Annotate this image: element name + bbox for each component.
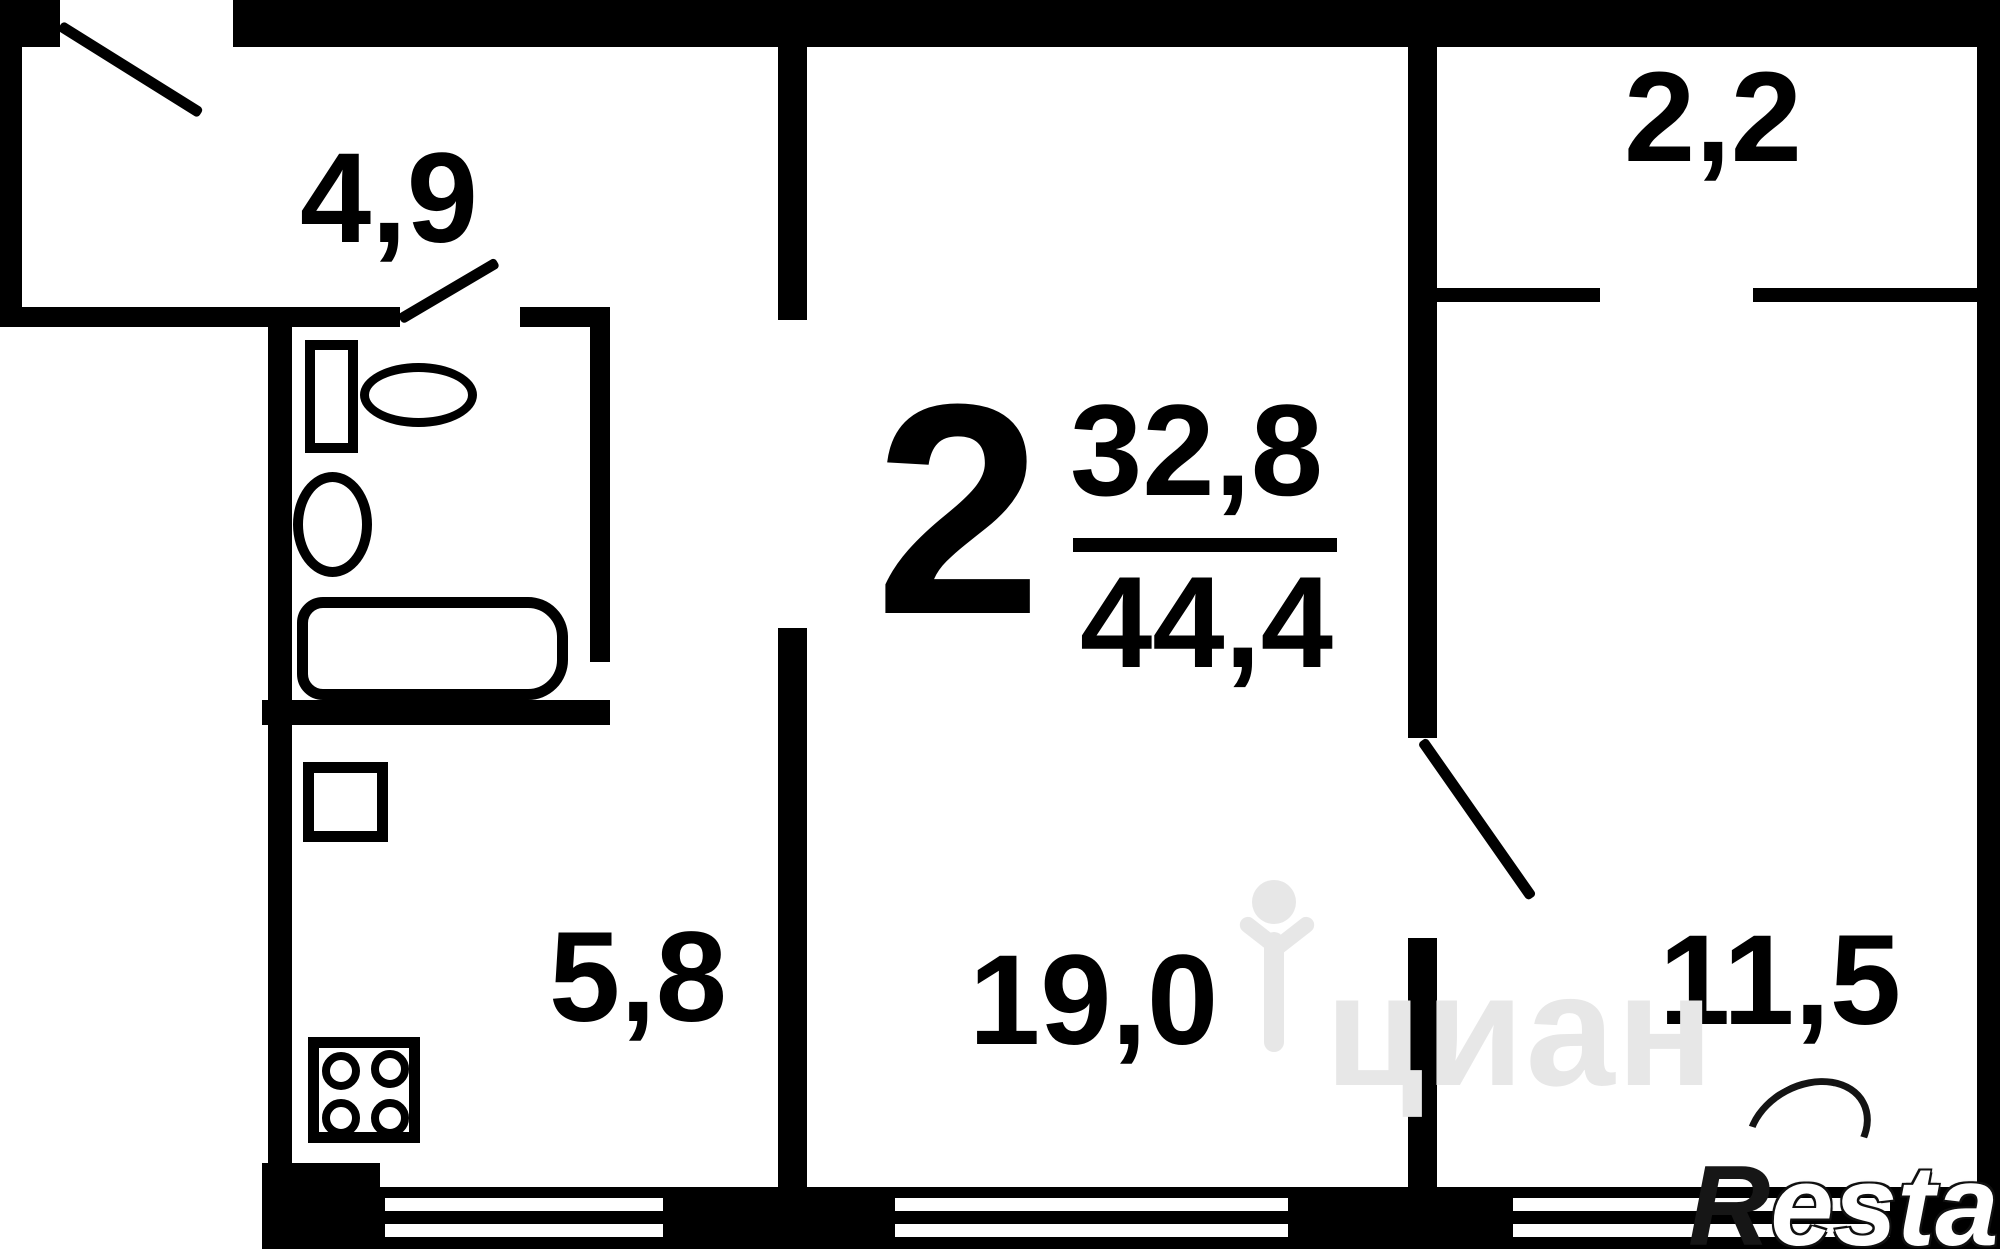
restate-logo-estate: estate [1770, 1143, 2000, 1249]
room-area-label-hallway: 4,9 [300, 135, 478, 263]
cian-watermark-text: циан [1325, 950, 1715, 1110]
wall-central-upper [778, 47, 807, 320]
wall-central-lower [778, 628, 807, 1187]
wall-left-outer [0, 25, 22, 327]
fridge [303, 762, 388, 842]
bedroom-door-swing [1417, 737, 1536, 901]
room-area-label-kitchen: 5,8 [549, 914, 727, 1042]
room-area-label-balcony: 2,2 [1624, 54, 1802, 182]
room-area-label-living-room: 19,0 [969, 937, 1218, 1065]
living-room-window [895, 1198, 1288, 1211]
wall-right-outer [1977, 47, 2000, 1249]
stove-burner [371, 1099, 409, 1137]
wall-bathroom-top-left [290, 307, 400, 327]
toilet-tank [305, 340, 358, 453]
toilet-bowl [360, 363, 477, 427]
wall-bathroom-kitchen-left [268, 307, 292, 1187]
sink [293, 472, 372, 577]
floor-plan: циан 4,9 2,2 5,8 [0, 0, 2000, 1249]
stove-burner [371, 1050, 409, 1088]
restate-logo: Restate [1688, 1150, 2000, 1249]
wall-hallway-bottom [0, 307, 290, 327]
wall-bathroom-right [590, 307, 610, 662]
wall-bottom-jog [262, 1163, 380, 1187]
stove-burner [322, 1099, 360, 1137]
wall-top [233, 0, 2000, 47]
living-area-numerator: 32,8 [1070, 385, 1323, 515]
entrance-door-swing [57, 21, 204, 118]
wall-right-divider-upper [1408, 47, 1437, 738]
kitchen-window [385, 1224, 663, 1237]
rooms-count-number: 2 [875, 359, 1042, 659]
bathtub [297, 597, 568, 700]
wall-balcony-sill-right [1753, 288, 1977, 302]
stove-burner [322, 1052, 360, 1090]
wall-bathroom-bottom [262, 700, 610, 725]
restate-logo-r: R [1688, 1143, 1770, 1249]
wall-balcony-sill-left [1437, 288, 1600, 302]
kitchen-window [385, 1198, 663, 1211]
living-room-window [895, 1224, 1288, 1237]
total-area-denominator: 44,4 [1080, 557, 1333, 687]
